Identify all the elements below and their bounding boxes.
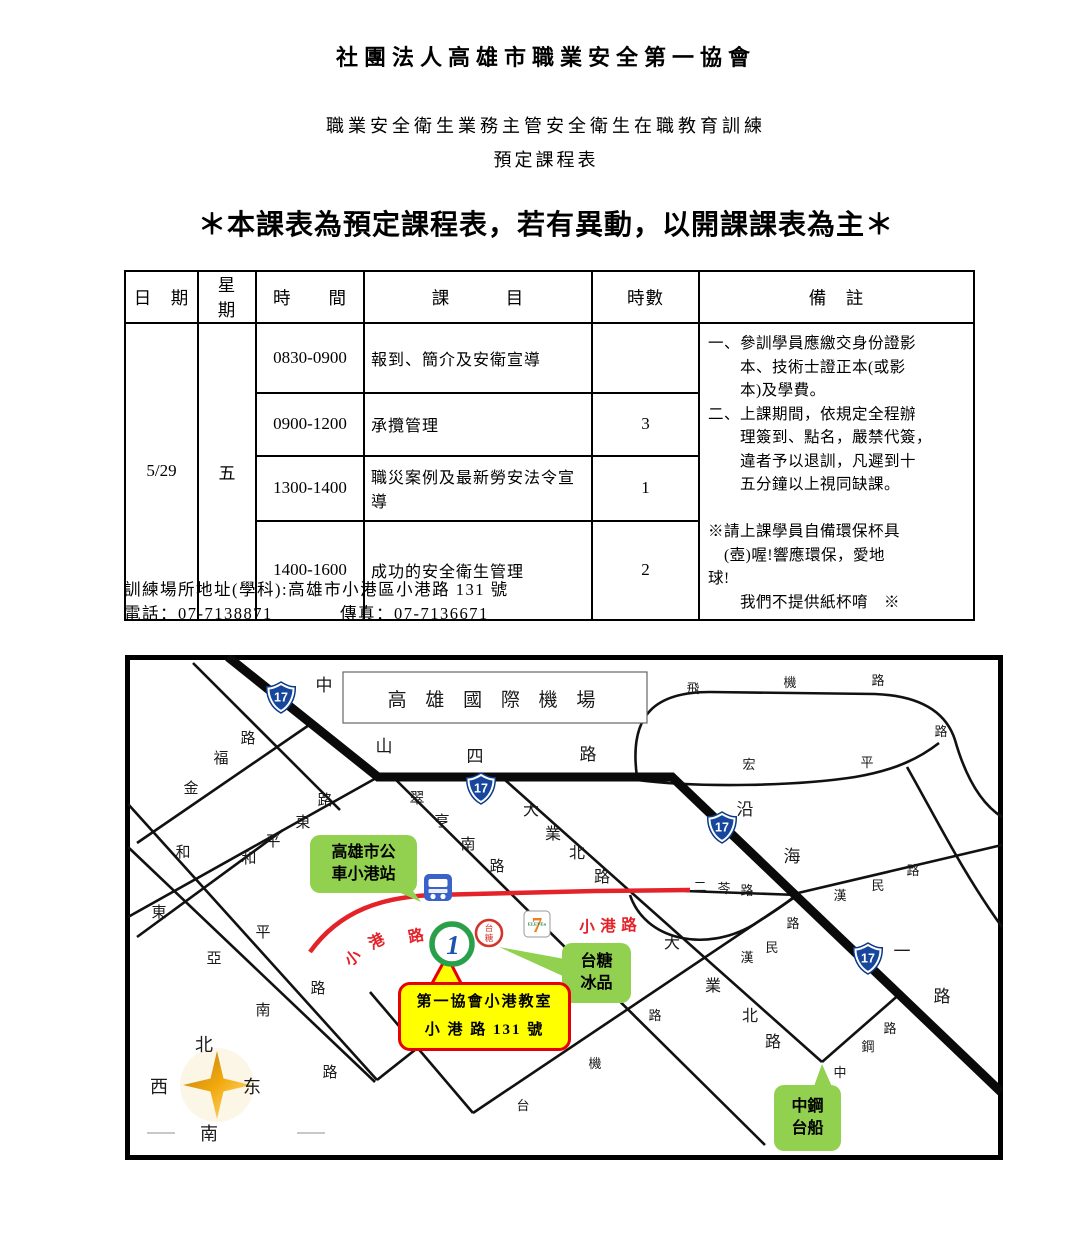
text-line	[708, 497, 965, 521]
road-label: 路	[310, 980, 325, 997]
text-line: 本)及學費。	[708, 379, 965, 403]
highway-shield-number: 17	[715, 821, 729, 835]
text-line: 球!	[708, 567, 965, 591]
text-line: 車小港站	[331, 864, 395, 886]
road-label: 四	[467, 747, 484, 766]
road-label: 路	[740, 883, 753, 898]
road-label: 大	[664, 934, 680, 952]
road-label: 路	[317, 792, 332, 809]
text-line: 我們不提供紙杯唷 ※	[708, 591, 965, 615]
text-line: 小 港 路 131 號	[425, 1017, 545, 1045]
text-line: 第一協會小港教室	[416, 989, 552, 1017]
notice-line: ＊本課表為預定課程表，若有異動，以開課課表為主＊	[0, 203, 1092, 243]
org-title: 社團法人高雄市職業安全第一協會	[0, 40, 1092, 72]
remarks-cell: 一、參訓學員應繳交身份證影 本、技術士證正本(或影 本)及學費。二、上課期間，依…	[699, 323, 974, 620]
road-label: 二	[693, 879, 706, 894]
road-label: 平	[860, 755, 873, 770]
svg-text:台: 台	[485, 923, 494, 933]
road-label: 海	[784, 847, 801, 866]
xiaogang-road-label: 港	[600, 916, 616, 935]
road-label: 沿	[737, 800, 754, 819]
road-label: 路	[240, 730, 255, 747]
assoc-logo-icon: 1	[432, 924, 472, 964]
highway-shield-number: 17	[474, 782, 488, 796]
road-label: 路	[594, 868, 610, 886]
steel-shipyard-callout: 中鋼台船	[774, 1085, 841, 1151]
road-label: 一	[894, 942, 911, 961]
road-label: 飛	[686, 681, 699, 696]
taitang-logo-icon: 台 糖	[476, 920, 502, 946]
location-map: 高 雄 國 際 機 場 1 台 糖	[125, 655, 1003, 1160]
assoc-logo-glyph: 1	[446, 930, 460, 960]
road-label: 平	[255, 925, 270, 941]
road-label: 中	[316, 676, 333, 695]
hours-cell	[592, 323, 699, 393]
road-label: 業	[705, 977, 721, 995]
text-line: 五分鐘以上視同缺課。	[708, 473, 965, 497]
col-header-hours: 時數	[592, 271, 699, 323]
subject-cell: 報到、簡介及安衛宣導	[364, 323, 592, 393]
time-cell: 1300-1400	[256, 456, 364, 521]
text-line: 冰品	[580, 973, 612, 995]
text-line: 違者予以退訓，凡遲到十	[708, 450, 965, 474]
col-header-subject: 課 目	[364, 271, 592, 323]
road-label: 福	[213, 750, 228, 767]
road-label: 北	[569, 844, 585, 862]
road-label: 路	[934, 724, 947, 739]
bus-icon	[424, 874, 452, 901]
text-line: (壺)喔!響應環保，愛地	[708, 544, 965, 568]
road-label: 業	[545, 825, 561, 843]
phone: 電話：07-7138871	[124, 604, 273, 623]
road-label: 路	[322, 1064, 337, 1081]
road-label: 民	[765, 940, 778, 955]
training-address: 訓練場所地址(學科):高雄市小港區小港路 131 號	[124, 576, 509, 600]
road-label: 南	[460, 836, 475, 853]
seven-eleven-icon: 7 ELEVEn	[524, 911, 550, 937]
road-label: 台	[516, 1098, 529, 1113]
time-cell: 0900-1200	[256, 393, 364, 456]
text-line: 台船	[791, 1118, 823, 1140]
text-line: ※請上課學員自備環保杯具	[708, 520, 965, 544]
bus-station-callout: 高雄市公車小港站	[310, 835, 417, 893]
road-label: 機	[588, 1056, 601, 1071]
text-line: 本、技術士證正本(或影	[708, 356, 965, 380]
text-line: 高雄市公	[331, 842, 395, 864]
road-label: 南	[255, 1002, 270, 1019]
road-label: 路	[871, 673, 884, 688]
compass-east: 东	[243, 1077, 261, 1097]
road-label: 中	[833, 1065, 846, 1080]
road-label: 苓	[717, 881, 730, 896]
hours-cell: 2	[592, 521, 699, 620]
road-label: 和	[175, 844, 190, 861]
xiaogang-road-label: 路	[621, 915, 637, 934]
highway-shield-number: 17	[861, 952, 875, 966]
road-label: 機	[783, 675, 796, 690]
road-label: 路	[786, 916, 799, 931]
col-header-time: 時 間	[256, 271, 364, 323]
phone-fax-line: 電話：07-7138871 傳真：07-7136671	[124, 600, 489, 624]
road-label: 漢	[740, 950, 753, 965]
hours-cell: 1	[592, 456, 699, 521]
road-label: 東	[151, 904, 166, 921]
table-header-row: 日 期 星 期 時 間 課 目 時數 備 註	[125, 271, 974, 323]
col-header-remarks: 備 註	[699, 271, 974, 323]
road-label: 路	[580, 745, 597, 764]
taitang-callout: 台糖冰品	[562, 943, 631, 1003]
time-cell: 0830-0900	[256, 323, 364, 393]
assoc-classroom-callout: 第一協會小港教室小 港 路 131 號	[398, 982, 571, 1051]
road-label: 亨	[434, 813, 449, 830]
col-header-weekday: 星 期	[198, 271, 256, 323]
text-line: 二、上課期間，依規定全程辦	[708, 403, 965, 427]
training-title: 職業安全衛生業務主管安全衛生在職教育訓練	[0, 112, 1092, 138]
airport-label: 高 雄 國 際 機 場	[388, 689, 603, 711]
text-line: 理簽到、點名，嚴禁代簽，	[708, 426, 965, 450]
compass-west: 西	[150, 1077, 168, 1097]
road-label: 路	[906, 863, 919, 878]
road-label: 東	[295, 814, 310, 831]
svg-text:糖: 糖	[485, 933, 494, 943]
seven-sub-glyph: ELEVEn	[528, 922, 547, 927]
text-line: 台糖	[580, 951, 612, 973]
text-line: 一、參訓學員應繳交身份證影	[708, 332, 965, 356]
document-page: 社團法人高雄市職業安全第一協會 職業安全衛生業務主管安全衛生在職教育訓練 預定課…	[0, 0, 1092, 1240]
road-label: 路	[765, 1033, 781, 1051]
road-label: 翠	[409, 791, 424, 807]
compass-north: 北	[195, 1035, 213, 1055]
fax: 傳真：07-7136671	[340, 604, 489, 623]
map-canvas: 高 雄 國 際 機 場 1 台 糖	[125, 655, 1003, 1160]
road-label: 宏	[742, 757, 755, 772]
road-label: 路	[489, 858, 504, 875]
road-label: 鋼	[861, 1039, 874, 1054]
road-label: 漢	[833, 888, 846, 903]
hours-cell: 3	[592, 393, 699, 456]
road-label: 北	[742, 1007, 758, 1025]
compass-south: 南	[200, 1124, 218, 1144]
schedule-title: 預定課程表	[0, 146, 1092, 172]
road-label: 大	[523, 801, 539, 819]
table-row: 5/29 五 0830-0900 報到、簡介及安衛宣導 一、參訓學員應繳交身份證…	[125, 323, 974, 393]
col-header-date: 日 期	[125, 271, 198, 323]
subject-cell: 職災案例及最新勞安法令宣導	[364, 456, 592, 521]
road-label: 金	[183, 780, 198, 797]
road-label: 亞	[206, 951, 221, 967]
road-label: 山	[376, 737, 393, 756]
road-label: 路	[648, 1008, 661, 1023]
road-label: 路	[883, 1021, 896, 1036]
road-label: 和	[241, 850, 256, 867]
road-label: 路	[934, 987, 951, 1006]
road-label: 平	[265, 834, 280, 850]
text-line: 中鋼	[791, 1096, 823, 1118]
subject-cell: 承攬管理	[364, 393, 592, 456]
xiaogang-road-label: 小	[579, 918, 595, 936]
highway-shield-number: 17	[274, 691, 288, 705]
road-label: 民	[871, 878, 884, 893]
schedule-table: 日 期 星 期 時 間 課 目 時數 備 註 5/29 五 0830-0900 …	[124, 270, 975, 621]
